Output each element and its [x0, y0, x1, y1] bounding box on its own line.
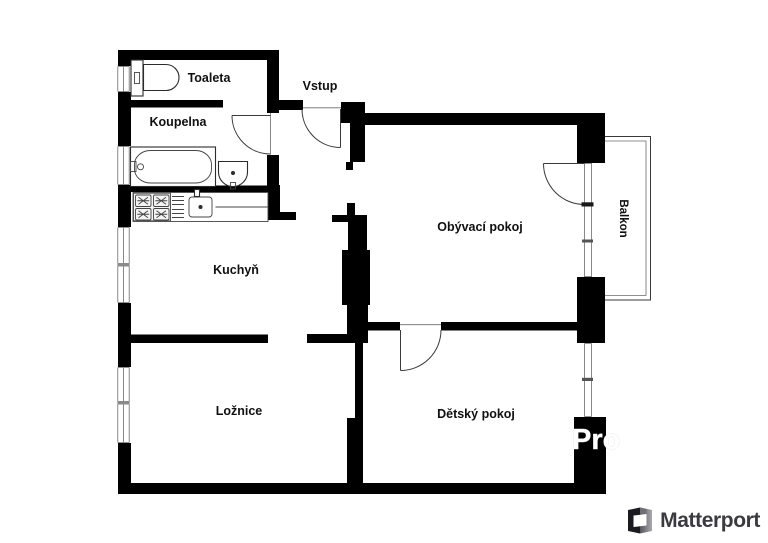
matterport-logo-text: Matterport	[660, 509, 760, 533]
wall-segment	[347, 203, 355, 215]
wall-segment	[441, 322, 577, 331]
door-swing-icon	[401, 330, 442, 371]
window-icon	[117, 367, 132, 443]
wall-segment	[347, 418, 363, 483]
kitchen-sink-icon	[189, 190, 212, 218]
sink-drain	[199, 205, 203, 209]
toilet-bowl	[144, 65, 180, 91]
wall-segment	[267, 50, 279, 113]
matterport-brand[interactable]: Matterport	[627, 507, 760, 534]
door-swing-icon	[302, 109, 341, 148]
room-label-detsky-pokoj: Dětský pokoj	[437, 407, 515, 421]
wall-segment	[577, 113, 605, 163]
wall-segment	[307, 334, 350, 343]
drawer-lines	[172, 197, 184, 218]
logo-center-hole	[634, 514, 647, 527]
wall-segment	[118, 483, 606, 494]
wall-segment	[355, 343, 363, 418]
window-mullion-tick	[118, 401, 130, 405]
toilet-icon	[131, 60, 179, 96]
room-label-obyvaci-pokoj: Obývací pokoj	[437, 220, 522, 234]
wall-segment	[342, 250, 370, 305]
bathtub-icon	[131, 147, 216, 187]
washbasin-icon	[219, 162, 248, 190]
kitchen-counter	[133, 190, 268, 222]
window-icon	[117, 66, 132, 92]
window-mullion-tick	[582, 240, 593, 243]
wall-segment	[360, 322, 400, 331]
floorplan-page: Toaleta Koupelna Vstup Kuchyň Obývací po…	[0, 0, 768, 543]
room-label-balkon: Balkon	[617, 199, 629, 237]
wall-segment	[346, 162, 353, 170]
watermark-text: Pro	[572, 424, 620, 456]
room-label-toaleta: Toaleta	[188, 71, 232, 85]
window-icon	[577, 343, 605, 417]
matterport-logo-icon	[627, 507, 653, 534]
balcony-door-icon	[544, 163, 606, 205]
wall-segment	[279, 100, 303, 110]
room-label-vstup: Vstup	[303, 79, 338, 93]
window-gap	[117, 146, 132, 185]
sink-tap	[195, 190, 200, 197]
window-mullion-tick	[118, 263, 130, 267]
stove-icon	[134, 193, 171, 221]
washbasin-drain	[231, 171, 235, 175]
toilet-tank	[131, 60, 143, 96]
room-label-loznice: Ložnice	[216, 404, 263, 418]
room-label-koupelna: Koupelna	[150, 115, 208, 129]
window-gap	[117, 66, 132, 92]
window-mullion-tick	[582, 202, 594, 206]
door-swing-icon	[232, 116, 271, 155]
wall-segment	[268, 185, 280, 220]
bathroom-door	[232, 113, 271, 155]
wall-segment	[128, 100, 223, 108]
wall-segment	[280, 212, 296, 220]
window-mullion-tick	[582, 378, 593, 381]
wall-segment	[118, 50, 273, 60]
window-icon	[117, 227, 132, 303]
room-label-kuchyn: Kuchyň	[213, 263, 259, 277]
childrens-room-door	[400, 325, 441, 371]
wall-segment	[118, 335, 268, 344]
window-icon	[577, 202, 605, 277]
window-icon	[117, 146, 132, 185]
window-gap	[117, 367, 132, 443]
door-gap	[577, 163, 605, 205]
floorplan-drawing: Toaleta Koupelna Vstup Kuchyň Obývací po…	[0, 0, 768, 543]
entry-door	[302, 108, 341, 148]
wall-segment	[577, 277, 605, 343]
wall-segment	[348, 215, 367, 250]
wall-segment	[352, 113, 580, 125]
